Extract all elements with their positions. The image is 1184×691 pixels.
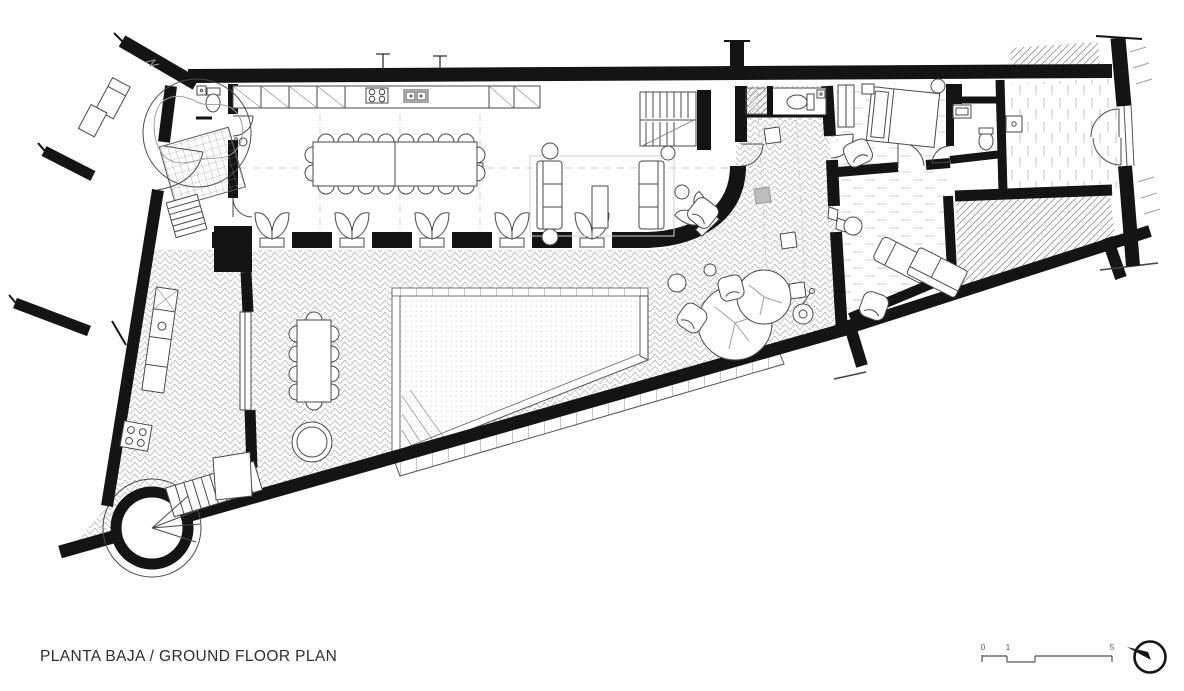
- sofa-left: [537, 161, 562, 229]
- floor-plan-sheet: PLANTA BAJA / GROUND FLOOR PLAN 0 1 5: [0, 0, 1184, 691]
- stair-main-room: [640, 90, 711, 150]
- title-block: PLANTA BAJA / GROUND FLOOR PLAN 0 1 5: [40, 642, 1166, 673]
- long-dining-table: [305, 134, 485, 194]
- bed: [866, 87, 939, 148]
- storage-room-floor: [1004, 78, 1124, 192]
- sink-icon: [404, 90, 428, 102]
- plan-caption: PLANTA BAJA / GROUND FLOOR PLAN: [40, 648, 337, 665]
- scale-label-0: 0: [981, 643, 986, 652]
- scale-bar: 0 1 5: [981, 643, 1115, 662]
- scale-label-5: 5: [1110, 643, 1115, 652]
- sofa-right: [639, 161, 664, 229]
- round-table: [292, 422, 332, 462]
- coffee-table: [592, 186, 608, 228]
- vestibule-wc: [197, 86, 220, 112]
- outdoor-stove-icon: [120, 421, 152, 451]
- french-door: [255, 213, 289, 247]
- storage-room: [1006, 116, 1022, 132]
- store-room: [213, 452, 252, 500]
- floor-plan-drawing: PLANTA BAJA / GROUND FLOOR PLAN 0 1 5: [0, 0, 1184, 691]
- scale-label-1: 1: [1006, 643, 1011, 652]
- stove-icon: [366, 88, 388, 103]
- north-arrow-icon: [1127, 642, 1166, 673]
- stair-vestibule: [166, 194, 207, 237]
- outdoor-dining-table: [289, 312, 339, 462]
- water-heater-icon: [1006, 116, 1022, 132]
- kitchen-counter: [233, 86, 540, 108]
- bathroom-fixtures: [953, 105, 993, 150]
